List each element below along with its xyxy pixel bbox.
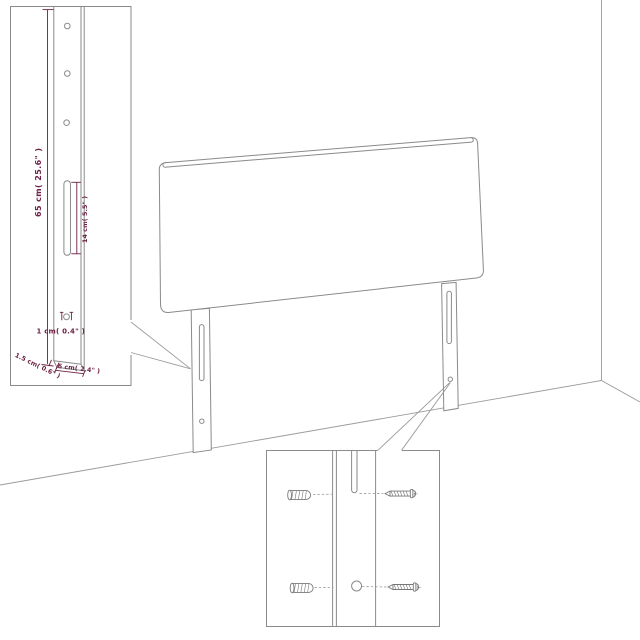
leg-inset-callout-lines [131, 322, 191, 369]
diagram-canvas: 65 cm( 25.6" ) 14 cm( 5.5" ) 1 cm( 0.4" … [0, 0, 640, 640]
mounting-hole-middle [65, 71, 71, 77]
headboard-assembly-diagram: 65 cm( 25.6" ) 14 cm( 5.5" ) 1 cm( 0.4" … [0, 0, 640, 640]
callout-line-left [378, 383, 450, 451]
dim-label-hole: 1 cm( 0.4" ) [37, 328, 85, 336]
wall-plug-icon [290, 583, 313, 593]
wall-plug-icon [288, 490, 311, 500]
hardware-detail-inset [267, 451, 440, 627]
hardware-inset-callout-lines [378, 383, 451, 451]
mounting-hole-top [65, 23, 71, 29]
headboard-leg-left [191, 308, 211, 452]
callout-line-upper [131, 322, 191, 369]
leg-detail-inset: 65 cm( 25.6" ) 14 cm( 5.5" ) 1 cm( 0.4" … [11, 7, 132, 386]
screw-icon [385, 489, 417, 497]
keyhole-slot-magnified [64, 181, 71, 256]
callout-line-right [402, 383, 451, 451]
small-screw-hole-magnified [64, 314, 70, 320]
dim-label-slot: 14 cm( 5.5" ) [82, 196, 89, 243]
floor-line-right [602, 381, 640, 403]
inset-background [267, 451, 440, 627]
callout-line-lower [131, 353, 191, 369]
mounting-hole-bottom [64, 120, 70, 126]
headboard-drawing [159, 138, 483, 453]
screw-hole-magnified [352, 581, 362, 591]
screw-icon [388, 583, 420, 591]
dim-label-height: 65 cm( 25.6" ) [34, 148, 43, 217]
